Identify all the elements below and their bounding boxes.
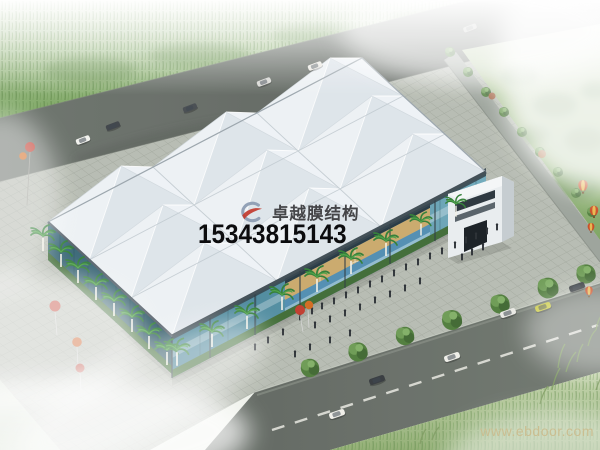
mist-overlays [0,0,600,450]
rendering-scene [0,0,600,450]
architectural-rendering-image: 卓越膜结构 15343815143 www.ebdoor.com [0,0,600,450]
